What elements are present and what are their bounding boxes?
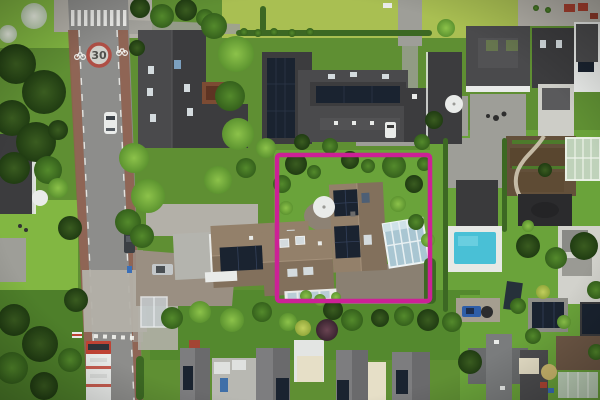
- photo-vignette: [0, 0, 600, 400]
- aerial-photo-canvas: 30: [0, 0, 600, 400]
- aerial-photo: 30: [0, 0, 600, 400]
